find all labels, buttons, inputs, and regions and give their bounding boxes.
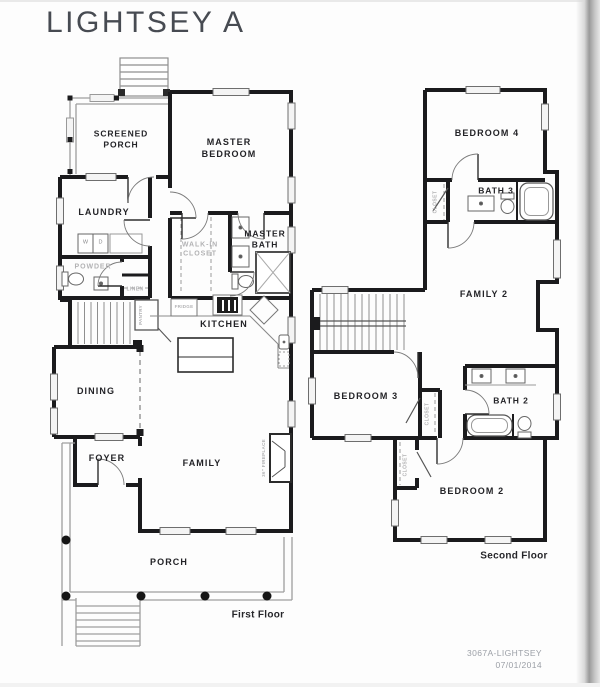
kitchen-island <box>178 338 233 372</box>
step-post <box>118 89 125 96</box>
room-label-walk-in-closet: WALK-IN CLOSET <box>182 241 218 260</box>
plan-date: 07/01/2014 <box>467 660 542 672</box>
sheet-footer: 3067A-LIGHTSEY 07/01/2014 <box>467 648 542 672</box>
rear-steps-icon <box>120 58 168 96</box>
photo-right-edge <box>576 0 600 687</box>
fridge-label: FRIDGE <box>175 304 194 310</box>
closet-label-bedroom2: CLOSET <box>403 454 410 477</box>
fireplace-label: 36" FIREPLACE <box>261 439 267 477</box>
bathtub-bath2 <box>467 415 512 436</box>
room-label-bath-2: BATH 2 <box>493 395 528 406</box>
stairs-first-floor <box>78 302 142 349</box>
second-floor-plan <box>309 87 561 544</box>
floor-plan-drawing <box>0 0 600 687</box>
dining-opening <box>137 345 144 436</box>
room-label-linen: LINEN <box>127 287 144 294</box>
second-floor-walls <box>312 90 557 540</box>
plan-title: LIGHTSEY A <box>46 6 246 40</box>
second-floor-windows <box>309 87 561 544</box>
room-label-master-bath: MASTER BATH <box>244 229 285 252</box>
pantry-label: PANTRY <box>138 305 144 325</box>
room-label-master-bedroom: MASTER BEDROOM <box>202 136 257 160</box>
room-label-bedroom-4: BEDROOM 4 <box>455 127 519 139</box>
room-label-dining: DINING <box>77 385 115 397</box>
bathtub-bath3 <box>520 183 553 220</box>
room-label-bath-3: BATH 3 <box>478 185 513 196</box>
shower-icon <box>256 252 290 293</box>
room-label-screened-porch: SCREENED PORCH <box>94 129 148 152</box>
kitchen-sink-icon <box>279 335 289 366</box>
dryer-label: D <box>99 239 103 246</box>
closet-label-bedroom3: CLOSET <box>425 403 432 426</box>
room-label-kitchen: KITCHEN <box>200 318 248 330</box>
closet-label-bedroom4: CLOSET <box>433 191 440 214</box>
room-label-foyer: FOYER <box>89 452 126 464</box>
room-label-family: FAMILY <box>183 457 222 469</box>
photo-top-edge <box>0 0 600 2</box>
photo-bottom-edge <box>0 683 600 687</box>
room-label-bedroom-2: BEDROOM 2 <box>440 485 504 497</box>
room-label-porch: PORCH <box>150 556 188 568</box>
range-icon <box>213 295 242 315</box>
first-floor-caption: First Floor <box>232 608 285 622</box>
washer-label: W <box>83 239 88 246</box>
floor-plan-sheet: LIGHTSEY A SCREENED PORCH MASTER BEDROOM… <box>0 0 600 687</box>
second-floor-caption: Second Floor <box>480 549 548 563</box>
room-label-family-2: FAMILY 2 <box>460 288 508 300</box>
fireplace-icon <box>270 434 291 482</box>
room-label-powder: POWDER <box>75 262 112 271</box>
plan-id: 3067A-LIGHTSEY <box>467 648 542 660</box>
room-label-laundry: LAUNDRY <box>78 206 129 218</box>
stairs-second-floor <box>314 294 406 350</box>
room-label-bedroom-3: BEDROOM 3 <box>334 390 398 402</box>
screen-window <box>90 95 114 102</box>
